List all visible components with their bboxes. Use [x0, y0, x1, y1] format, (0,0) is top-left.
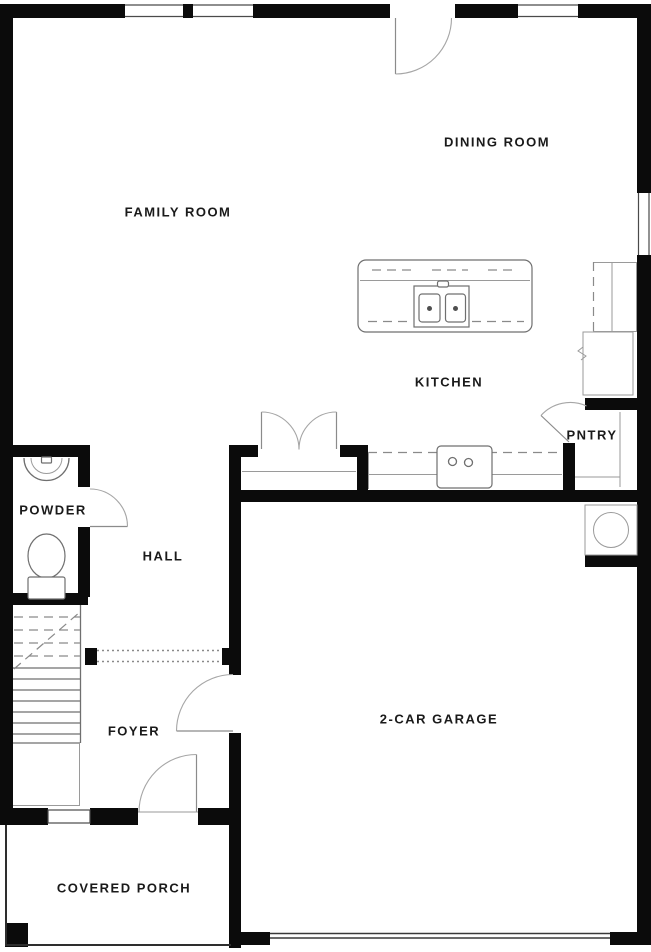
wall-segment	[222, 648, 241, 665]
window-top-left-1	[125, 5, 183, 17]
sink-drain	[427, 306, 432, 311]
vanity-faucet	[42, 457, 52, 463]
garage-entry-door-swing-arc	[177, 675, 234, 732]
hall-ceiling-break-lines	[97, 651, 222, 662]
wall-segment	[253, 4, 390, 18]
window-front-wall	[48, 810, 90, 823]
room-label-pantry: PNTRY	[566, 428, 617, 443]
wall-segment	[229, 445, 241, 675]
patio-door-swing-arc	[396, 18, 452, 74]
wall-segment	[229, 733, 241, 948]
wall-segment	[585, 555, 637, 567]
doors	[90, 18, 610, 938]
walls	[0, 4, 651, 948]
wall-segment	[78, 445, 90, 487]
floor-plan-linework	[0, 0, 651, 952]
window-right-wall	[639, 193, 650, 255]
wall-segment	[85, 648, 97, 665]
wall-segment	[637, 4, 651, 193]
wall-break-symbol	[578, 347, 586, 360]
garage-overhead-door	[270, 934, 610, 939]
room-label-kitchen: KITCHEN	[415, 375, 483, 390]
wall-segment	[90, 808, 138, 825]
pantry-door-swing-arc	[541, 403, 587, 416]
water-heater	[594, 513, 629, 548]
room-label-garage: 2-CAR GARAGE	[380, 712, 498, 727]
room-label-foyer: FOYER	[108, 724, 160, 739]
wall-segment	[637, 255, 651, 945]
wall-segment	[229, 490, 651, 502]
wall-segment	[8, 4, 125, 18]
range-cooktop	[437, 446, 492, 488]
wall-segment	[0, 808, 48, 825]
toilet-bowl	[28, 534, 65, 578]
powder-fixtures	[24, 457, 69, 599]
room-label-hall: HALL	[143, 549, 184, 564]
sink-drain	[453, 306, 458, 311]
wall-segment	[183, 4, 193, 18]
staircase	[13, 605, 81, 806]
closet-door-swing-arc-right	[299, 412, 337, 450]
wall-segment	[8, 445, 88, 457]
upper-cabinet-outline	[593, 262, 637, 332]
floor-plan: FAMILY ROOM DINING ROOM KITCHEN PNTRY PO…	[0, 0, 651, 952]
under-stair-closet	[13, 743, 80, 806]
wall-segment	[585, 398, 651, 410]
window-top-left-2	[193, 5, 253, 17]
toilet-tank	[28, 577, 65, 599]
room-label-porch: COVERED PORCH	[57, 881, 191, 896]
powder-door-swing-arc	[90, 489, 128, 527]
windows	[48, 5, 649, 823]
kitchen-island	[358, 260, 532, 332]
wall-segment	[241, 445, 258, 457]
porch-post	[5, 923, 28, 947]
stair-treads	[13, 668, 80, 743]
room-label-family-room: FAMILY ROOM	[125, 205, 232, 220]
wall-segment	[232, 932, 270, 945]
closet-door-swing-arc-left	[262, 412, 300, 450]
stair-direction-line	[14, 612, 80, 669]
stair-treads-above-dashed	[14, 617, 80, 656]
pantry-shelf-lines	[575, 412, 620, 487]
wall-segment	[198, 808, 232, 825]
wall-segment	[78, 527, 90, 597]
room-label-dining-room: DINING ROOM	[444, 135, 550, 150]
kitchen-counter	[368, 446, 562, 489]
wall-segment	[610, 932, 643, 945]
room-label-powder: POWDER	[19, 503, 87, 518]
sink-faucet	[438, 281, 449, 287]
pantry-door-leaf	[541, 416, 569, 443]
window-top-right	[518, 5, 578, 17]
refrigerator	[583, 332, 633, 395]
front-door-swing-arc	[139, 755, 197, 813]
wall-segment	[455, 4, 518, 18]
wall-segment	[563, 443, 575, 502]
wall-segment	[0, 4, 13, 825]
